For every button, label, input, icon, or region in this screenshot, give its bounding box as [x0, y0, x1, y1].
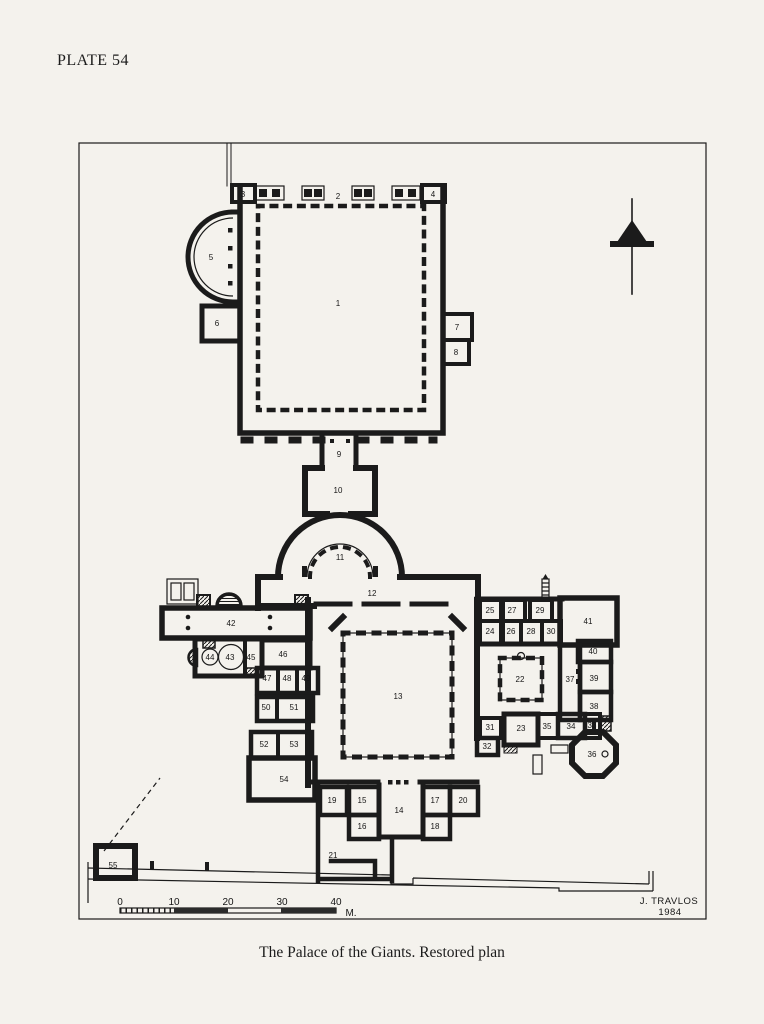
room-label-16: 16 — [358, 822, 367, 831]
room-label-1: 1 — [336, 299, 341, 308]
room-label-10: 10 — [334, 486, 343, 495]
room-label-36: 36 — [588, 750, 597, 759]
room-label-41: 41 — [584, 617, 593, 626]
room-label-48: 48 — [283, 674, 292, 683]
room-label-11: 11 — [336, 553, 345, 562]
room-label-38: 38 — [590, 702, 599, 711]
room-label-7: 7 — [455, 323, 460, 332]
room-label-12: 12 — [368, 589, 377, 598]
room-label-2: 2 — [336, 192, 341, 201]
floor-plan: 0 10 20 30 40 M. J. TRAVLOS 1984 1 2 3 4… — [0, 0, 764, 1024]
room-label-19: 19 — [328, 796, 337, 805]
scale-unit: M. — [345, 908, 356, 919]
room-label-37: 37 — [566, 675, 575, 684]
upper-peristyle-walls — [188, 144, 472, 440]
court-colonnade-dots — [258, 206, 424, 410]
room-label-18: 18 — [431, 822, 440, 831]
room-label-8: 8 — [454, 348, 459, 357]
room-label-46: 46 — [279, 650, 288, 659]
central-court-walls — [308, 600, 477, 785]
room-label-3: 3 — [241, 190, 246, 199]
room-label-33: 33 — [588, 721, 597, 730]
room-label-43: 43 — [226, 653, 235, 662]
scale-tick-10: 10 — [168, 897, 180, 908]
room-label-54: 54 — [280, 775, 289, 784]
room-label-14: 14 — [395, 806, 404, 815]
room-label-52: 52 — [260, 740, 269, 749]
room-label-47: 47 — [263, 674, 272, 683]
attribution-year: 1984 — [658, 907, 681, 918]
drain-ladder — [542, 574, 549, 600]
room-label-39: 39 — [590, 674, 599, 683]
room-label-26: 26 — [507, 627, 516, 636]
room-label-22: 22 — [516, 675, 525, 684]
room-label-40: 40 — [589, 647, 598, 656]
room-label-51: 51 — [290, 703, 299, 712]
room-label-6: 6 — [215, 319, 220, 328]
room-label-23: 23 — [517, 724, 526, 733]
room-label-49: 49 — [302, 674, 311, 683]
room-label-32: 32 — [483, 742, 492, 751]
scale-bar: 0 10 20 30 40 M. — [117, 897, 356, 919]
scale-tick-30: 30 — [276, 897, 288, 908]
room-label-53: 53 — [290, 740, 299, 749]
room-label-17: 17 — [431, 796, 440, 805]
room-label-27: 27 — [508, 606, 517, 615]
middle-axis-walls — [258, 433, 478, 608]
room-label-5: 5 — [209, 253, 214, 262]
room-label-55: 55 — [109, 861, 118, 870]
room-label-20: 20 — [459, 796, 468, 805]
stair-apse — [217, 594, 241, 606]
room-label-35: 35 — [543, 722, 552, 731]
room-label-42: 42 — [227, 619, 236, 628]
room-label-29: 29 — [536, 606, 545, 615]
room-label-28: 28 — [527, 627, 536, 636]
room-label-4: 4 — [431, 190, 436, 199]
room-label-15: 15 — [358, 796, 367, 805]
room-label-34: 34 — [567, 722, 576, 731]
room-label-24: 24 — [486, 627, 495, 636]
north-arrow-icon — [610, 199, 654, 294]
room-label-50: 50 — [262, 703, 271, 712]
scale-tick-20: 20 — [222, 897, 234, 908]
left-wing-walls — [162, 579, 318, 800]
room-label-31: 31 — [486, 723, 495, 732]
plate-caption: The Palace of the Giants. Restored plan — [0, 944, 764, 962]
attribution: J. TRAVLOS 1984 — [640, 896, 699, 918]
plan-border — [79, 143, 706, 919]
scale-tick-40: 40 — [330, 897, 342, 908]
room-label-21: 21 — [329, 851, 338, 860]
plate-page: PLATE 54 — [0, 0, 764, 1024]
south-rooms-walls — [318, 785, 478, 881]
attribution-author: J. TRAVLOS — [640, 896, 699, 907]
room-label-13: 13 — [394, 692, 403, 701]
room-label-45: 45 — [247, 653, 256, 662]
room-labels: 1 2 3 4 5 6 7 8 9 10 11 12 13 14 15 16 1… — [109, 190, 599, 870]
stairs-hatch — [600, 716, 611, 731]
aqueduct-dashed-line — [104, 778, 160, 851]
room-label-44: 44 — [206, 653, 215, 662]
scale-tick-0: 0 — [117, 897, 123, 908]
room-label-25: 25 — [486, 606, 495, 615]
room-label-30: 30 — [547, 627, 556, 636]
room-label-9: 9 — [337, 450, 342, 459]
